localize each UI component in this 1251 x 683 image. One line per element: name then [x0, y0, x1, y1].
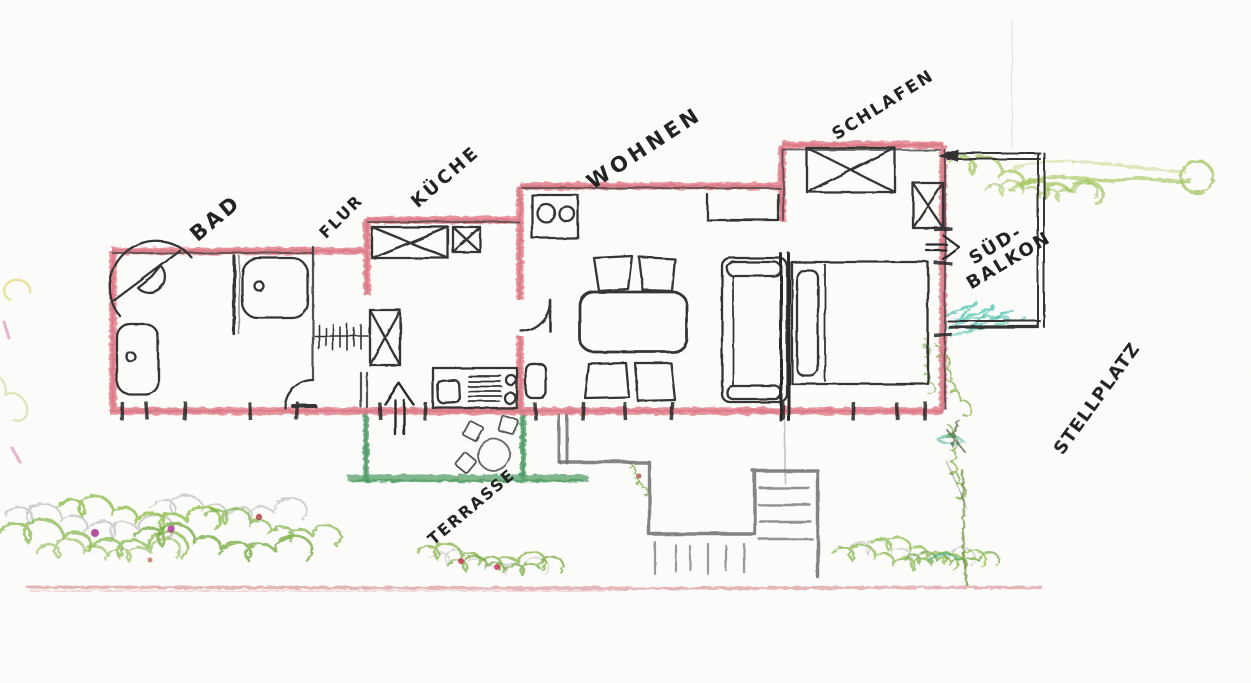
floorplan-sketch-page: BAD FLUR KÜCHE WOHNEN SCHLAFEN SÜD- BALK…	[0, 0, 1251, 683]
floorplan-drawing	[0, 0, 1251, 683]
paper-texture	[0, 0, 1251, 683]
